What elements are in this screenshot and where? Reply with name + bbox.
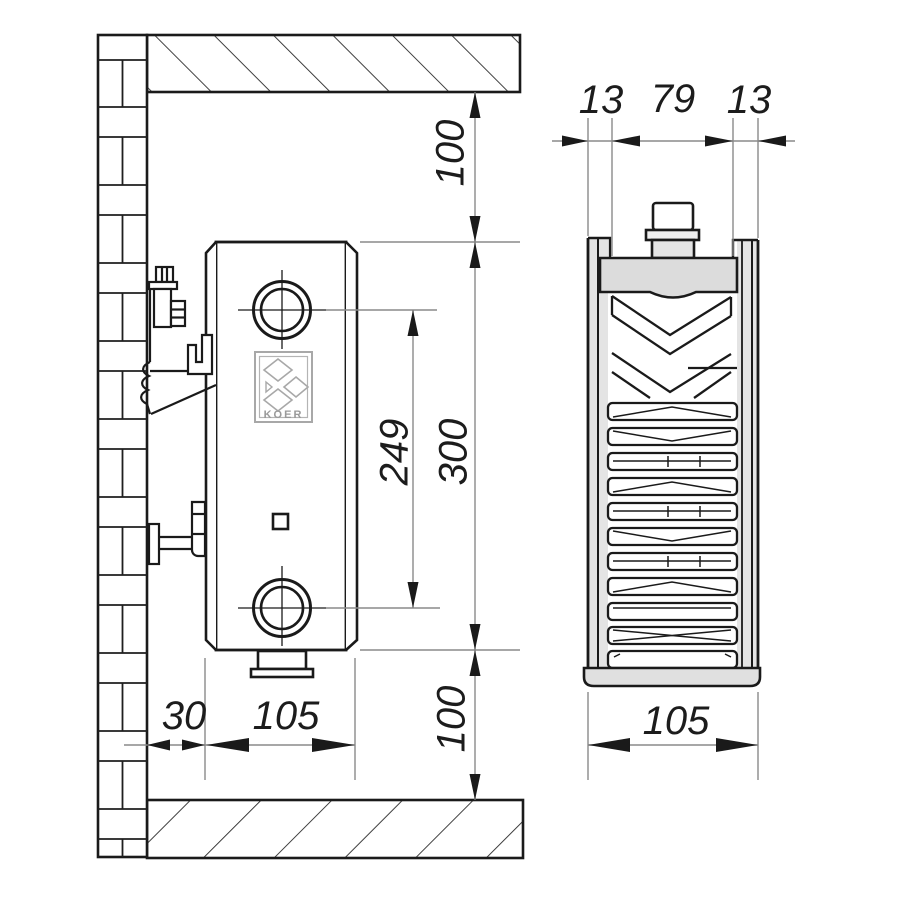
bracket-bolt-head (156, 267, 173, 282)
lower-bracket-holder (192, 502, 205, 556)
floor-hatch (147, 800, 523, 858)
ceiling-hatch (147, 35, 520, 92)
dim-depth-side-label: 105 (253, 694, 320, 738)
radiator-technical-drawing: KOER (0, 0, 900, 900)
section-base-flange (584, 668, 760, 686)
bracket-hook (188, 335, 212, 374)
bracket-block (154, 289, 171, 327)
dim-back-gap-label: 13 (579, 78, 624, 122)
section-front-panel-fill (737, 240, 758, 668)
dim-wall-offset-label: 30 (162, 694, 207, 738)
wall-bricks (98, 35, 147, 857)
lower-mounting-bracket (149, 502, 205, 564)
radiator-back-wing (206, 242, 216, 650)
koer-logo: KOER (255, 352, 312, 422)
radiator-section-view (584, 203, 760, 686)
dim-depth-section-label: 105 (643, 699, 710, 743)
valve-flange (646, 230, 699, 240)
dim-bottom-clearance-label: 100 (430, 686, 474, 753)
radiator-front-face (216, 242, 346, 650)
logo-text: KOER (264, 409, 304, 421)
radiator-side-view: KOER (206, 242, 357, 677)
dim-front-gap-label: 13 (727, 78, 772, 122)
section-valve (646, 203, 699, 258)
bottom-outlet (251, 651, 313, 677)
dim-core-width-label: 79 (651, 77, 696, 121)
drawing-canvas: KOER (0, 0, 900, 900)
dim-height-label: 300 (432, 419, 476, 486)
drain-plug-square (273, 514, 288, 529)
bracket-nut (171, 301, 185, 326)
lower-bracket-wall-plate (149, 524, 159, 564)
section-top-header (600, 258, 737, 298)
section-grille-slots (608, 403, 737, 668)
valve-cap (653, 203, 693, 230)
dim-top-clearance-label: 100 (429, 120, 473, 187)
radiator-front-wing (346, 242, 357, 650)
dim-port-spacing-label: 249 (373, 419, 417, 487)
section-convector-fins (612, 296, 737, 398)
valve-neck (652, 240, 694, 258)
